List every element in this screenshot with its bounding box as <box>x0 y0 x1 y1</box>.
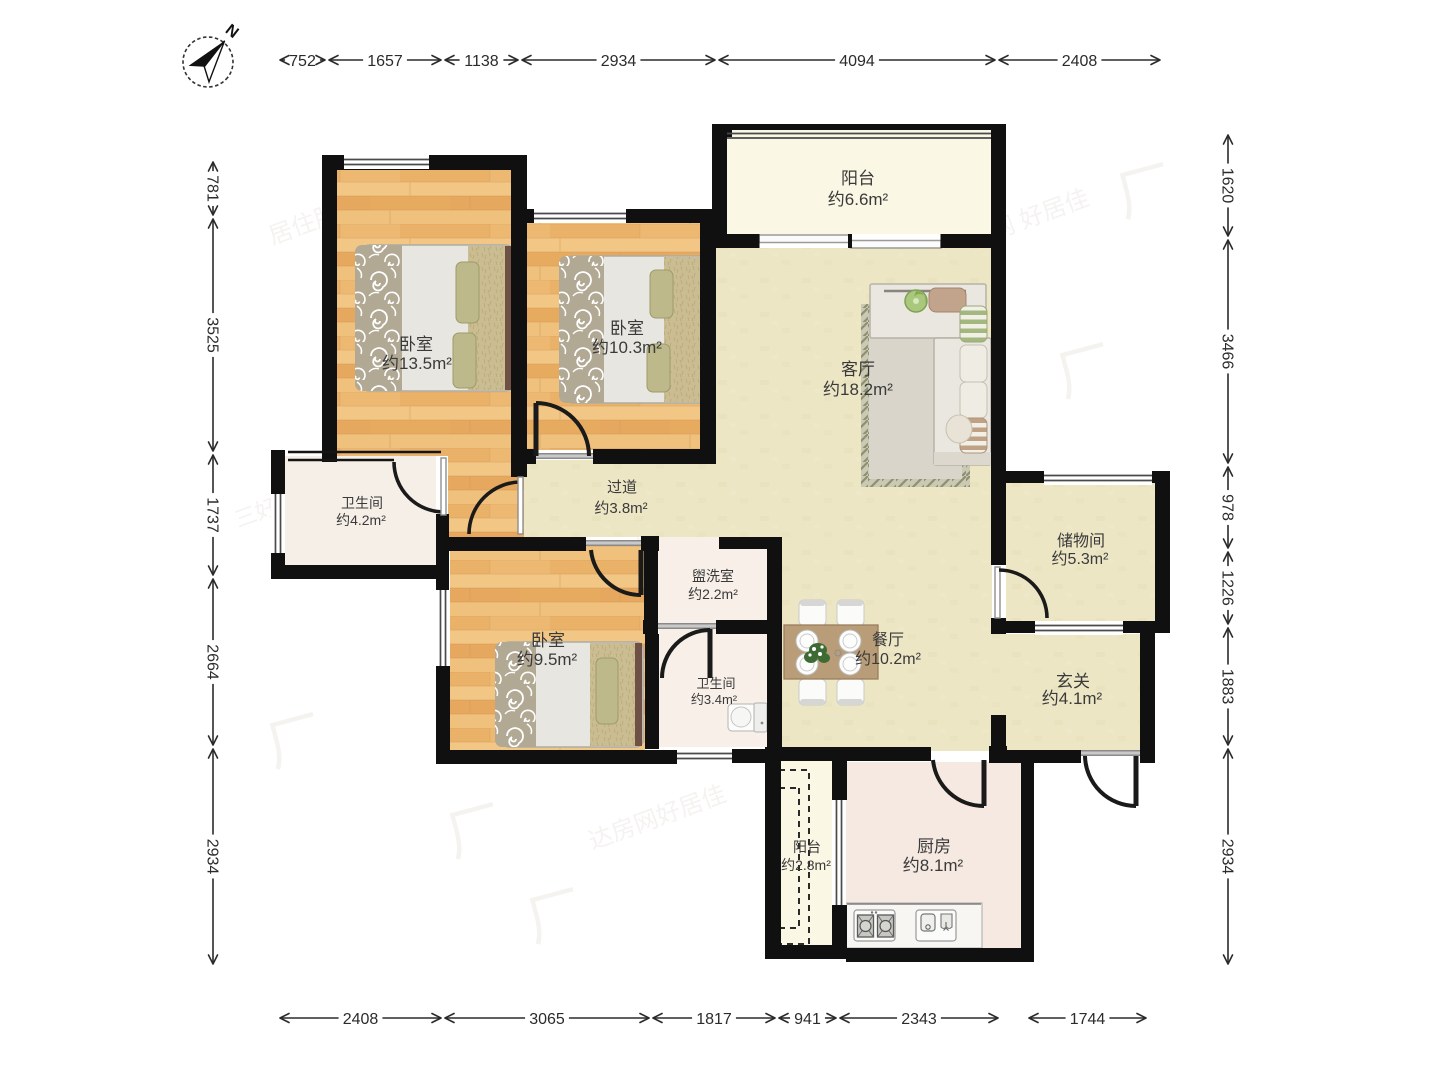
svg-text:约2.8m²: 约2.8m² <box>781 857 831 873</box>
svg-text:2664: 2664 <box>203 644 220 680</box>
svg-text:阳台: 阳台 <box>793 839 821 855</box>
svg-text:3525: 3525 <box>203 317 220 353</box>
svg-text:1737: 1737 <box>203 497 220 533</box>
svg-text:卧室: 卧室 <box>399 335 433 354</box>
svg-text:卫生间: 卫生间 <box>696 676 735 691</box>
svg-text:1657: 1657 <box>367 53 403 70</box>
svg-text:约2.2m²: 约2.2m² <box>688 586 738 602</box>
svg-text:卧室: 卧室 <box>531 631 565 650</box>
svg-text:3466: 3466 <box>1218 334 1235 370</box>
svg-text:卧室: 卧室 <box>610 319 644 338</box>
svg-text:阳台: 阳台 <box>841 169 875 188</box>
svg-text:客厅: 客厅 <box>841 360 875 379</box>
svg-text:2408: 2408 <box>1062 53 1098 70</box>
svg-text:1620: 1620 <box>1218 168 1235 204</box>
svg-text:卫生间: 卫生间 <box>341 495 383 511</box>
svg-text:约9.5m²: 约9.5m² <box>517 650 578 669</box>
svg-text:约4.1m²: 约4.1m² <box>1042 689 1103 708</box>
svg-text:约5.3m²: 约5.3m² <box>1052 550 1110 568</box>
svg-text:978: 978 <box>1218 494 1235 521</box>
svg-text:约18.2m²: 约18.2m² <box>823 380 893 399</box>
svg-text:厨房: 厨房 <box>917 837 951 856</box>
svg-text:储物间: 储物间 <box>1057 532 1105 550</box>
svg-text:4094: 4094 <box>839 53 875 70</box>
svg-text:盥洗室: 盥洗室 <box>692 568 734 584</box>
svg-text:2408: 2408 <box>343 1011 379 1028</box>
svg-text:752: 752 <box>289 53 316 70</box>
svg-text:1883: 1883 <box>1218 669 1235 705</box>
svg-text:约4.2m²: 约4.2m² <box>336 512 386 528</box>
svg-text:781: 781 <box>203 175 220 202</box>
svg-text:约3.8m²: 约3.8m² <box>594 500 647 517</box>
svg-text:过道: 过道 <box>607 479 637 496</box>
svg-text:2934: 2934 <box>203 839 220 875</box>
svg-text:1744: 1744 <box>1070 1011 1106 1028</box>
svg-text:941: 941 <box>794 1011 821 1028</box>
svg-text:约8.1m²: 约8.1m² <box>903 856 964 875</box>
svg-text:2934: 2934 <box>1218 839 1235 875</box>
svg-text:约13.5m²: 约13.5m² <box>382 354 452 373</box>
svg-text:1226: 1226 <box>1218 570 1235 606</box>
svg-text:约3.4m²: 约3.4m² <box>691 692 738 707</box>
svg-text:3065: 3065 <box>529 1011 565 1028</box>
svg-text:2934: 2934 <box>601 53 637 70</box>
svg-text:约10.3m²: 约10.3m² <box>592 338 662 357</box>
svg-text:约6.6m²: 约6.6m² <box>828 190 889 209</box>
svg-text:餐厅: 餐厅 <box>872 631 904 649</box>
svg-text:2343: 2343 <box>901 1011 937 1028</box>
svg-text:1817: 1817 <box>696 1011 732 1028</box>
svg-text:1138: 1138 <box>464 53 499 70</box>
svg-text:约10.2m²: 约10.2m² <box>855 650 921 668</box>
